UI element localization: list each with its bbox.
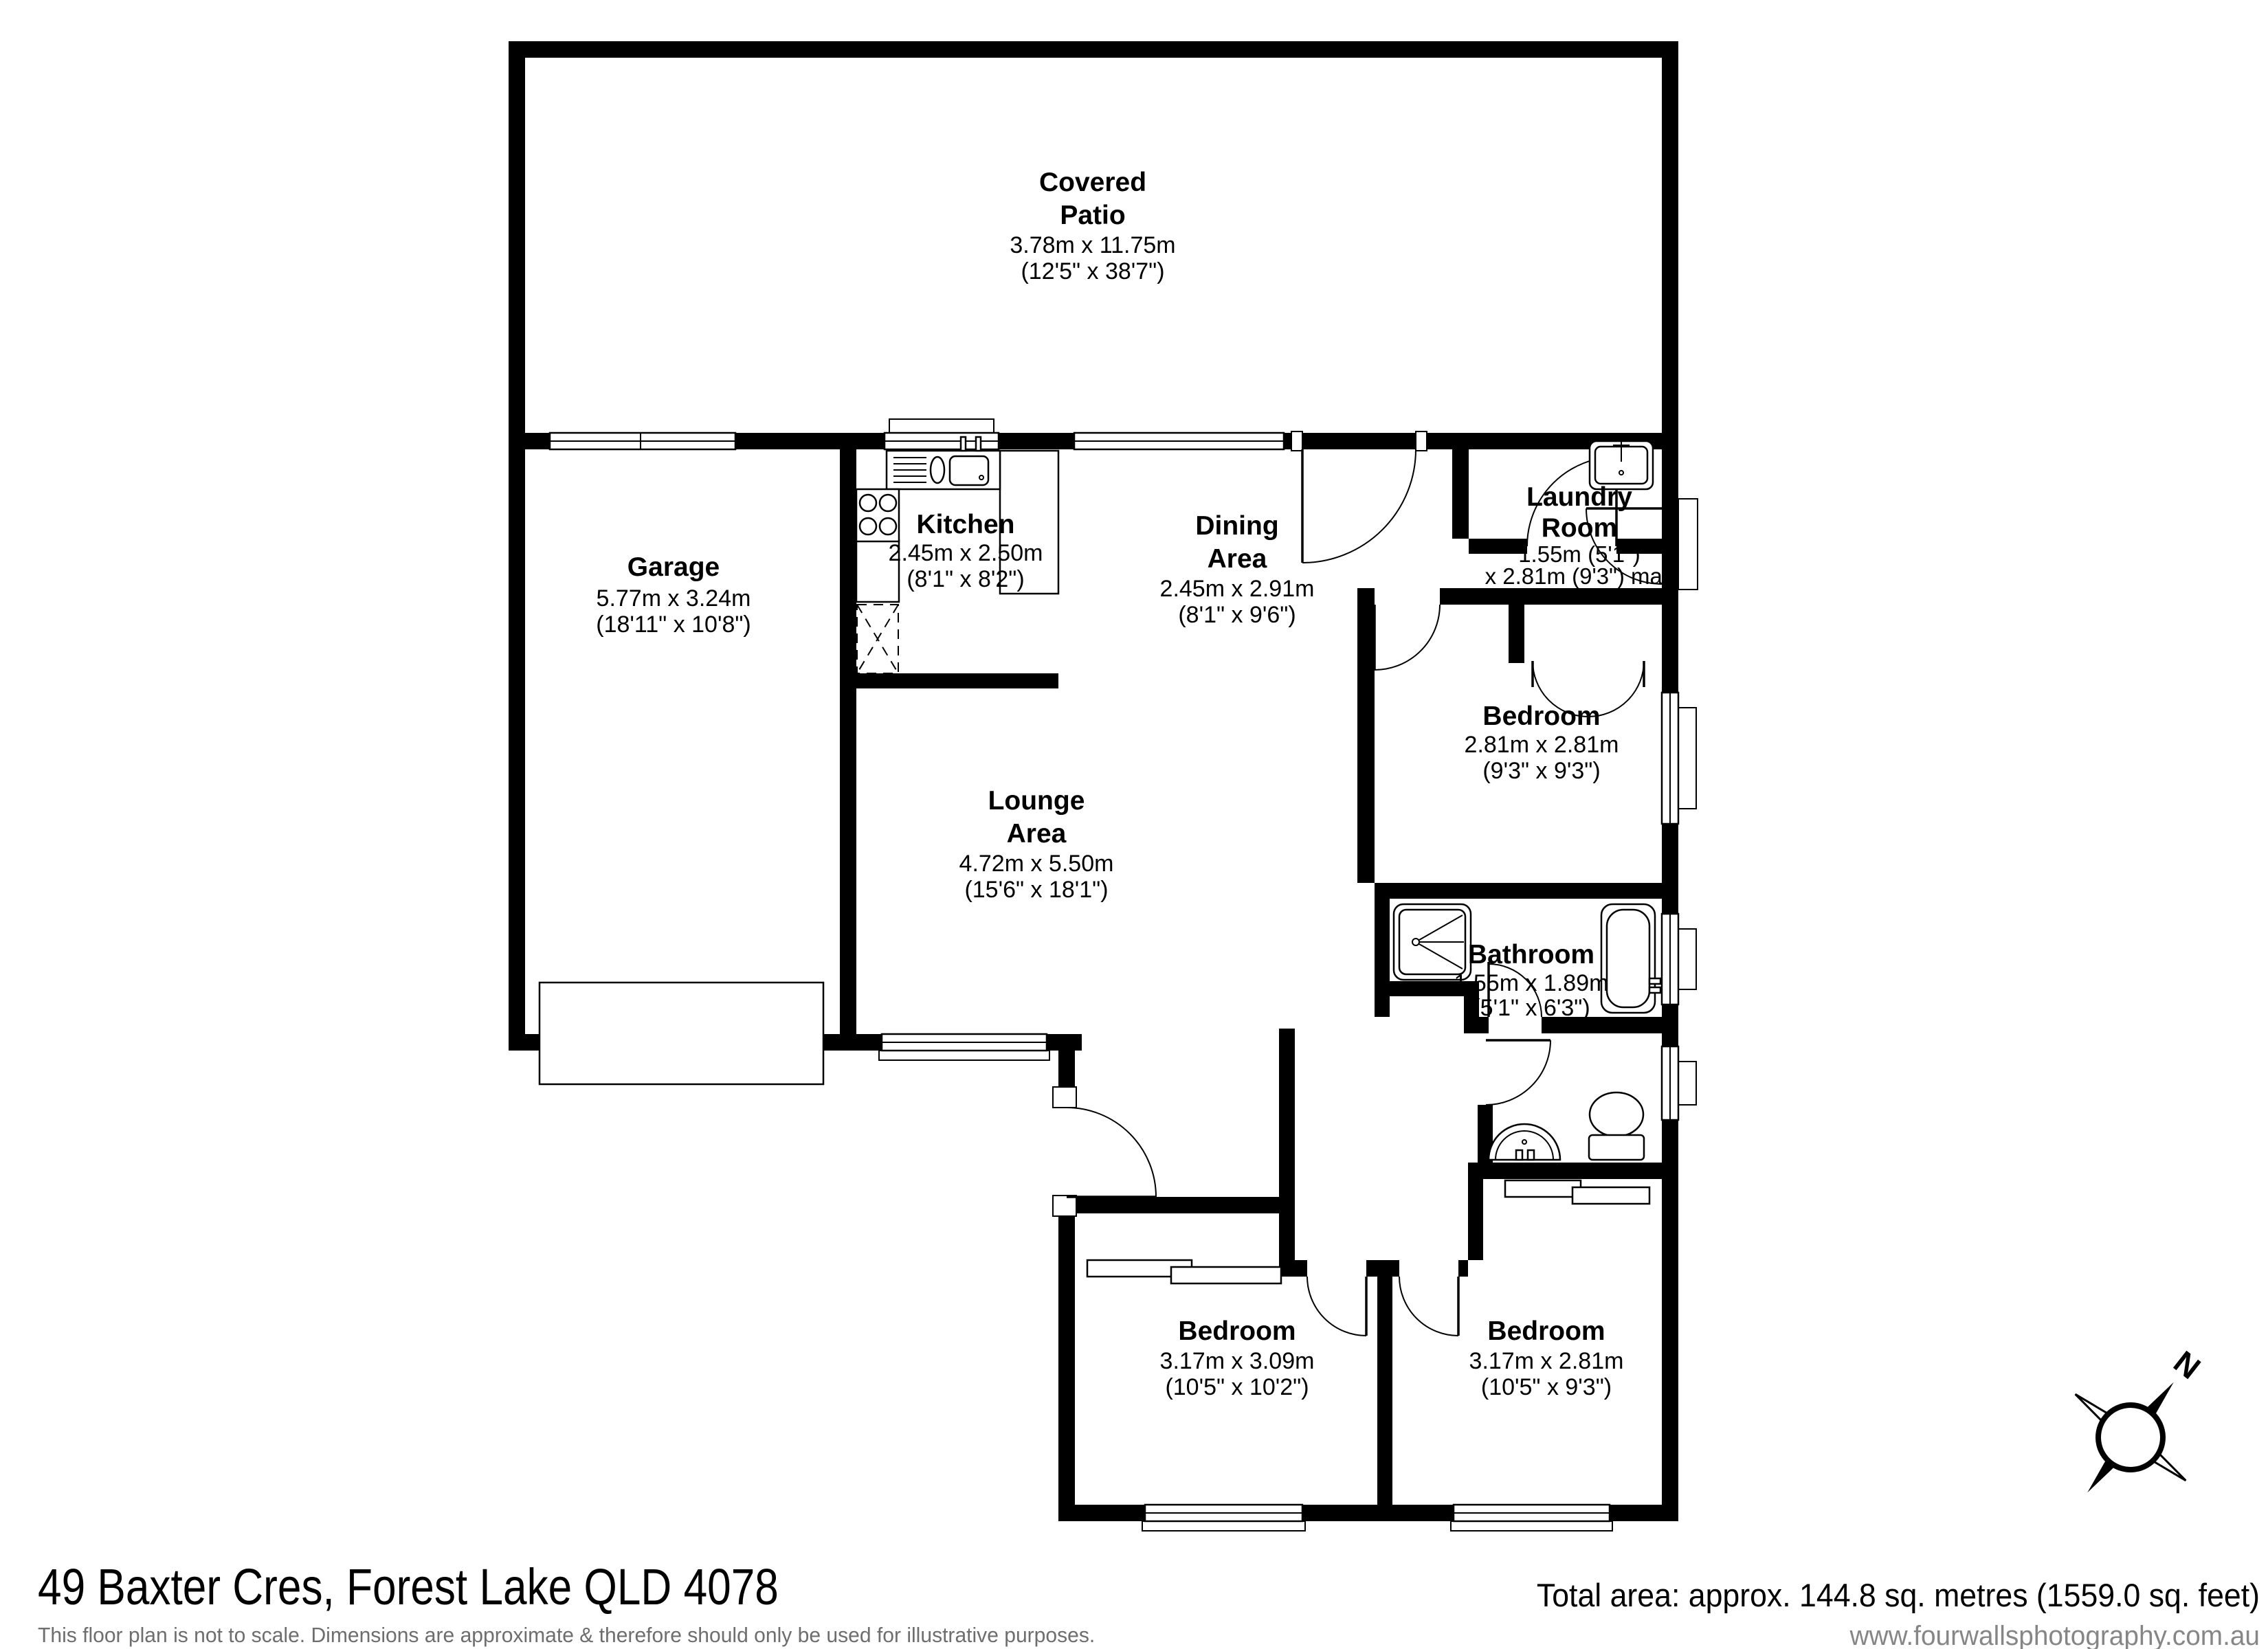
lounge-dims-m: 4.72m x 5.50m — [959, 851, 1114, 877]
total-area-text: Total area: approx. 144.8 sq. metres (15… — [1537, 1578, 2260, 1613]
bedroom-sw-robe — [1087, 1260, 1281, 1283]
wc-step-wall — [1468, 1179, 1483, 1260]
patio-door — [1291, 431, 1427, 563]
label-bedroom-ne: Bedroom 2.81m x 2.81m (9'3" x 9'3") — [1465, 702, 1619, 784]
dining-laundry-wall — [1452, 449, 1469, 539]
patio-name-1: Covered — [1039, 168, 1146, 197]
toilet — [1589, 1092, 1644, 1160]
wc-door — [1486, 1040, 1550, 1105]
garage-dims-m: 5.77m x 3.24m — [597, 585, 751, 612]
bedroom-ne-bathroom-wall — [1375, 883, 1662, 899]
lobby-wall-seg1 — [1295, 1260, 1307, 1277]
address-title: 49 Baxter Cres, Forest Lake QLD 4078 — [38, 1559, 779, 1615]
bathtub — [1601, 904, 1660, 1013]
dining-dims-m: 2.45m x 2.91m — [1160, 576, 1315, 602]
patio-dims-m: 3.78m x 11.75m — [1010, 232, 1175, 258]
bedroom-se-window — [1451, 1505, 1612, 1531]
laundry-name-2: Room — [1542, 513, 1618, 543]
label-bathroom: Bathroom 1.55m x 1.89m (5'1" x 6'3") — [1454, 940, 1609, 1021]
bathroom-dims-ft: (5'1" x 6'3") — [1472, 995, 1590, 1021]
label-garage: Garage 5.77m x 3.24m (18'11" x 10'8") — [596, 552, 751, 638]
bedroom-sw-left-wall — [1058, 1197, 1075, 1521]
bedroom-se-robe — [1505, 1180, 1649, 1204]
lobby-wall-post — [1366, 1260, 1399, 1277]
wc-bottom-wall — [1468, 1163, 1662, 1179]
bedroom-sw-window — [1142, 1505, 1305, 1531]
lounge-bottom-wall — [1075, 1197, 1295, 1213]
lounge-bedroom-ne-wall — [1357, 605, 1375, 883]
hall-top-wall-right — [1440, 588, 1678, 605]
floorplan-drawing: Covered Patio 3.78m x 11.75m (12'5" x 38… — [0, 0, 2268, 1649]
laundry-name-1: Laundry — [1526, 482, 1632, 512]
label-bedroom-se: Bedroom 3.17m x 2.81m (10'5" x 9'3") — [1469, 1316, 1624, 1400]
bathroom-left-wall — [1375, 899, 1390, 1017]
room-labels: Covered Patio 3.78m x 11.75m (12'5" x 38… — [596, 168, 1674, 1400]
website-text: www.fourwallsphotography.com.au — [1849, 1620, 2260, 1649]
bedroom-sw-door — [1307, 1277, 1366, 1336]
bedroom-sw-dims-m: 3.17m x 3.09m — [1160, 1348, 1315, 1374]
shower — [1394, 904, 1471, 980]
vanity-basin — [1489, 1124, 1560, 1160]
garage-window — [550, 433, 735, 449]
patio-name-2: Patio — [1060, 201, 1125, 230]
bedroom-se-name: Bedroom — [1487, 1316, 1605, 1346]
lounge-dims-ft: (15'6" x 18'1") — [964, 877, 1108, 903]
hall-left-wall — [1279, 1029, 1295, 1277]
compass-icon: N — [2032, 1308, 2254, 1536]
disclaimer-text: This floor plan is not to scale. Dimensi… — [38, 1624, 1095, 1648]
bedroom-sw-name: Bedroom — [1178, 1316, 1296, 1346]
garage-kitchen-wall — [840, 449, 856, 1034]
laundry-dims-ft: x 2.81m (9'3") max — [1485, 563, 1674, 589]
label-covered-patio: Covered Patio 3.78m x 11.75m (12'5" x 38… — [1010, 168, 1175, 284]
label-laundry: Laundry Room 1.55m (5'1") x 2.81m (9'3")… — [1485, 482, 1674, 589]
bedroom-se-dims-ft: (10'5" x 9'3") — [1481, 1374, 1612, 1400]
bedrooms-divider-wall — [1377, 1277, 1392, 1505]
lounge-name-2: Area — [1007, 819, 1067, 849]
kitchen-dims-m: 2.45m x 2.50m — [889, 540, 1043, 566]
left-outer-wall — [509, 41, 525, 1051]
bedroom-ne-window — [1662, 693, 1696, 824]
pantry — [857, 605, 898, 673]
garage-door — [540, 983, 823, 1084]
label-bedroom-sw: Bedroom 3.17m x 3.09m (10'5" x 10'2") — [1160, 1316, 1315, 1400]
dining-dims-ft: (8'1" x 9'6") — [1178, 602, 1296, 628]
dining-window — [1074, 433, 1284, 449]
kitchen-dims-ft: (8'1" x 8'2") — [907, 566, 1024, 592]
bedroom-se-dims-m: 3.17m x 2.81m — [1469, 1348, 1624, 1374]
kitchen-lounge-wall — [840, 673, 1058, 688]
bathroom-dims-m: 1.55m x 1.89m — [1454, 970, 1609, 996]
bedroom-sw-dims-ft: (10'5" x 10'2") — [1165, 1374, 1309, 1400]
label-lounge: Lounge Area 4.72m x 5.50m (15'6" x 18'1"… — [959, 786, 1114, 903]
bedroom-ne-robe-nib — [1509, 605, 1524, 663]
entry-door — [1053, 1087, 1156, 1216]
bedroom-se-door — [1399, 1277, 1458, 1336]
floorplan-page: Covered Patio 3.78m x 11.75m (12'5" x 38… — [0, 0, 2268, 1649]
dining-name-2: Area — [1208, 544, 1267, 574]
stove — [856, 489, 899, 541]
kitchen-name: Kitchen — [916, 510, 1014, 539]
lounge-window — [879, 1034, 1049, 1060]
garage-name: Garage — [627, 552, 720, 582]
bedroom-ne-dims-ft: (9'3" x 9'3") — [1482, 758, 1600, 784]
bedroom-ne-dims-m: 2.81m x 2.81m — [1465, 732, 1619, 758]
patio-dims-ft: (12'5" x 38'7") — [1021, 258, 1164, 284]
lounge-name-1: Lounge — [988, 786, 1085, 816]
label-dining: Dining Area 2.45m x 2.91m (8'1" x 9'6") — [1160, 511, 1315, 628]
lobby-wall-seg2 — [1458, 1260, 1468, 1277]
hall-door — [1375, 605, 1440, 670]
bathroom-window — [1662, 914, 1696, 1005]
dining-name-1: Dining — [1195, 511, 1278, 541]
garage-dims-ft: (18'11" x 10'8") — [596, 612, 751, 638]
footer-texts: 49 Baxter Cres, Forest Lake QLD 4078 Thi… — [38, 1559, 2260, 1649]
hall-top-wall-left — [1357, 588, 1375, 605]
bedroom-ne-name: Bedroom — [1482, 702, 1600, 731]
bathroom-name: Bathroom — [1468, 940, 1594, 969]
compass-north-label: N — [2167, 1344, 2207, 1386]
wc-window — [1662, 1046, 1696, 1120]
patio-top-wall — [509, 41, 1678, 58]
